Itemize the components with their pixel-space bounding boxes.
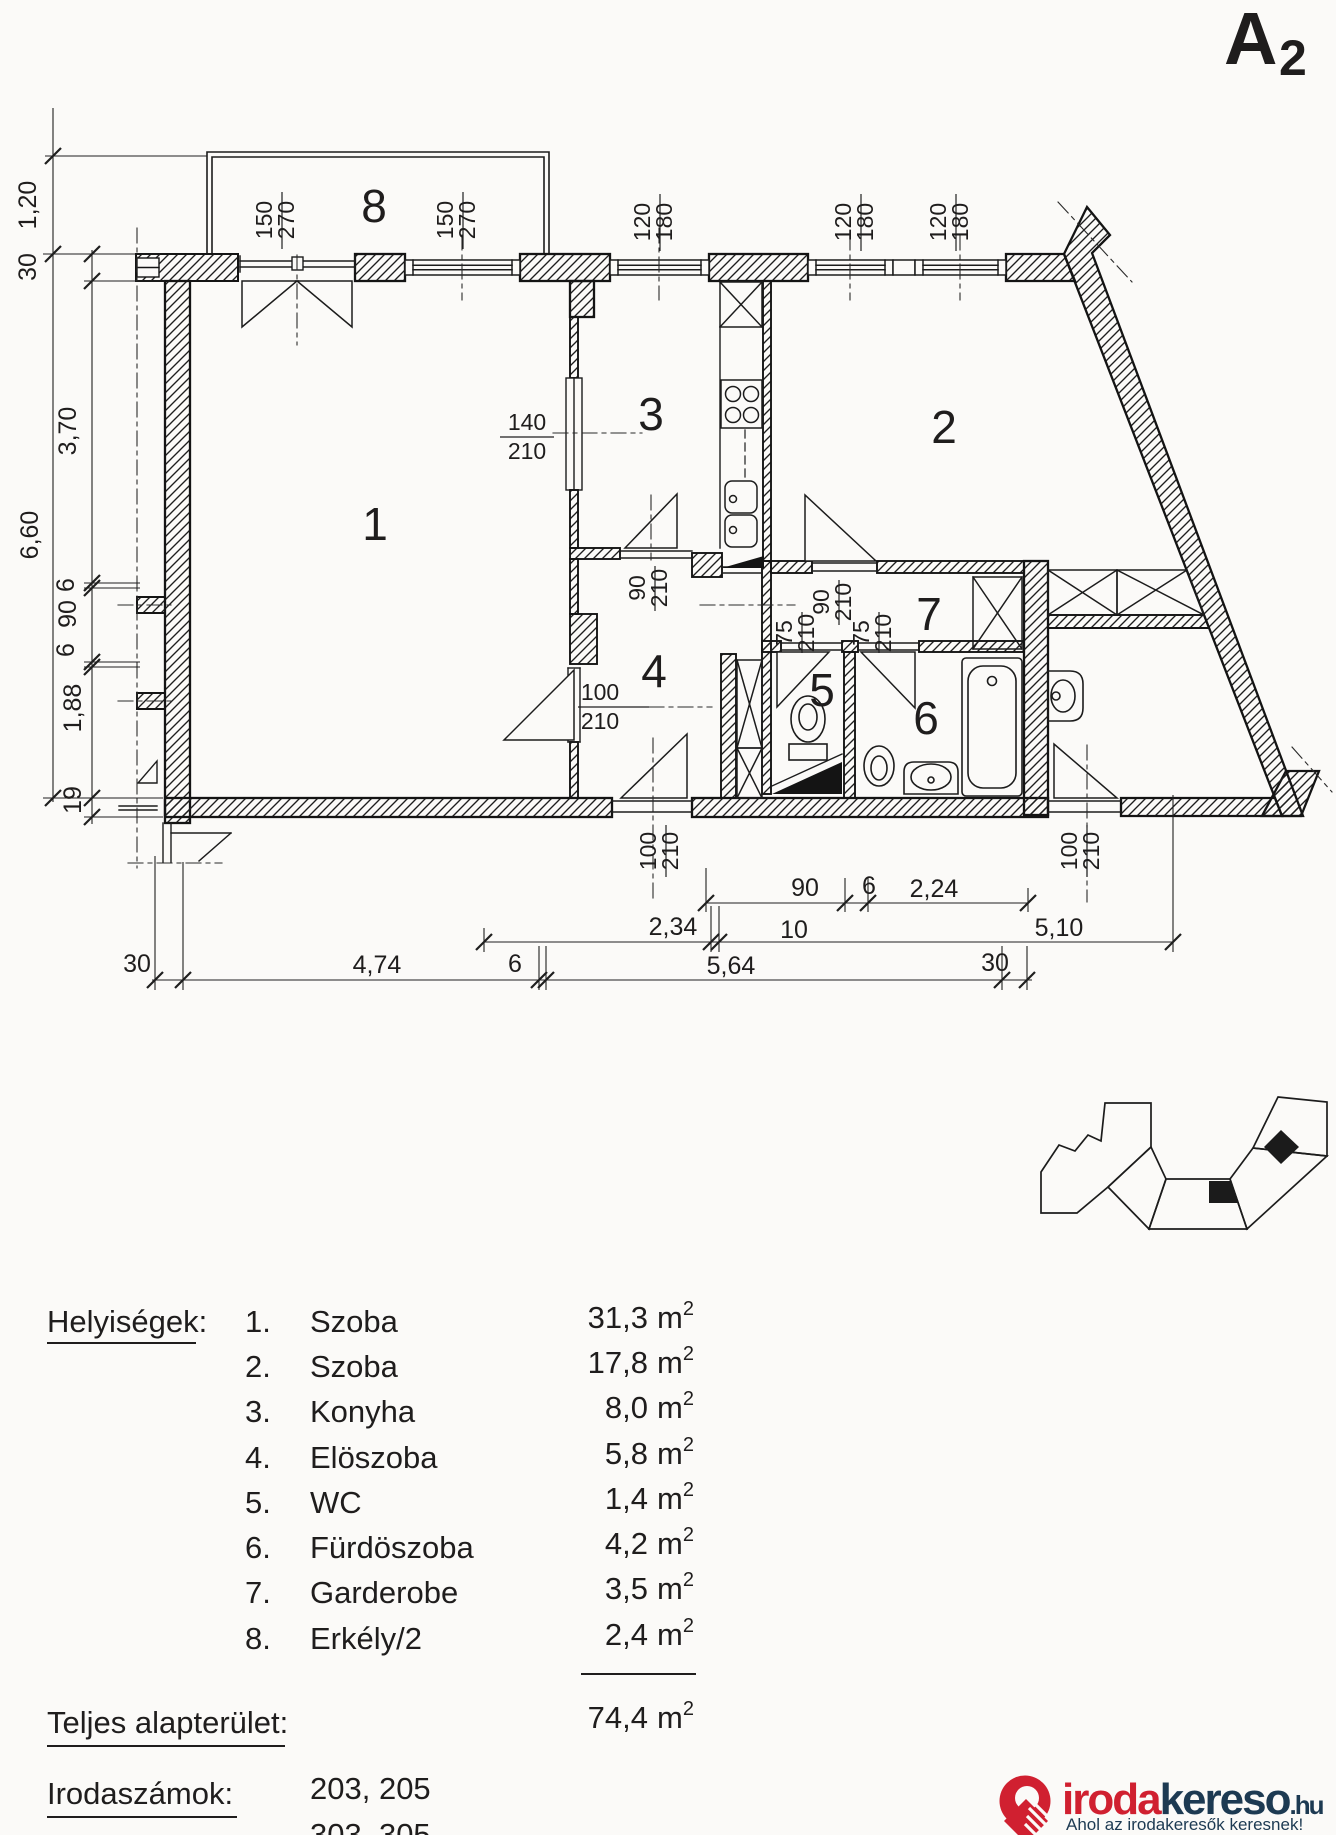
svg-text:8.: 8. (245, 1621, 271, 1656)
svg-text:1,88: 1,88 (59, 684, 87, 733)
svg-text:1.: 1. (245, 1304, 271, 1339)
svg-text:203, 205: 203, 205 (310, 1771, 431, 1806)
svg-text:3.: 3. (245, 1394, 271, 1429)
svg-text:A: A (1224, 0, 1277, 80)
svg-text:30: 30 (14, 253, 42, 281)
svg-text:Szoba: Szoba (310, 1304, 399, 1339)
svg-text:10: 10 (780, 916, 808, 944)
svg-text:2: 2 (931, 401, 957, 453)
svg-text:4,74: 4,74 (353, 951, 402, 979)
svg-text:5.: 5. (245, 1485, 271, 1520)
svg-text:2: 2 (1279, 30, 1307, 86)
svg-text:210: 210 (646, 569, 672, 607)
svg-text:6: 6 (913, 692, 939, 744)
svg-text:270: 270 (454, 201, 480, 239)
svg-text:2,34: 2,34 (649, 913, 698, 941)
svg-text:4.: 4. (245, 1440, 271, 1475)
svg-text:17,8: 17,8 (588, 1345, 648, 1380)
svg-text:6: 6 (862, 872, 876, 900)
svg-text:210: 210 (1078, 832, 1104, 870)
svg-text:19: 19 (59, 786, 87, 814)
svg-text:7: 7 (916, 588, 942, 640)
svg-text:8: 8 (361, 180, 387, 232)
svg-text:30: 30 (981, 949, 1009, 977)
svg-text:Szoba: Szoba (310, 1349, 399, 1384)
svg-text:100: 100 (581, 679, 619, 705)
svg-text:2.: 2. (245, 1349, 271, 1384)
svg-text:1: 1 (362, 498, 388, 550)
svg-text:4: 4 (641, 645, 667, 697)
svg-text:3,5: 3,5 (605, 1571, 648, 1606)
svg-text:6: 6 (52, 643, 80, 657)
svg-text:140: 140 (508, 409, 546, 435)
svg-text:180: 180 (651, 203, 677, 241)
svg-text:Fürdöszoba: Fürdöszoba (310, 1530, 474, 1565)
svg-text:6.: 6. (245, 1530, 271, 1565)
svg-text:1,4: 1,4 (605, 1481, 648, 1516)
svg-text:74,4: 74,4 (588, 1700, 648, 1735)
svg-text:5,8: 5,8 (605, 1436, 648, 1471)
svg-text:210: 210 (581, 708, 619, 734)
svg-text:4,2: 4,2 (605, 1526, 648, 1561)
svg-text:Helyiségek:: Helyiségek: (47, 1304, 207, 1339)
svg-text:Konyha: Konyha (310, 1394, 416, 1429)
svg-text:8,0: 8,0 (605, 1390, 648, 1425)
svg-text:210: 210 (870, 614, 896, 652)
svg-text:180: 180 (947, 203, 973, 241)
svg-text:6: 6 (508, 950, 522, 978)
svg-text:7.: 7. (245, 1575, 271, 1610)
svg-text:Erkély/2: Erkély/2 (310, 1621, 422, 1656)
svg-text:210: 210 (830, 583, 856, 621)
svg-text:Elöszoba: Elöszoba (310, 1440, 438, 1475)
svg-text:30: 30 (123, 950, 151, 978)
svg-text:180: 180 (852, 203, 878, 241)
svg-text:5,64: 5,64 (707, 952, 756, 980)
svg-text:WC: WC (310, 1485, 362, 1520)
svg-text:303, 305: 303, 305 (310, 1817, 431, 1835)
svg-text:2,4: 2,4 (605, 1617, 648, 1652)
svg-text:6,60: 6,60 (16, 511, 44, 560)
svg-text:3,70: 3,70 (54, 407, 82, 456)
svg-text:90: 90 (54, 600, 82, 628)
svg-text:90: 90 (791, 874, 819, 902)
svg-text:Teljes alapterület:: Teljes alapterület: (47, 1705, 288, 1740)
svg-text:6: 6 (52, 578, 80, 592)
svg-text:5: 5 (809, 664, 835, 716)
svg-text:210: 210 (793, 614, 819, 652)
svg-text:210: 210 (508, 438, 546, 464)
svg-text:2,24: 2,24 (910, 875, 959, 903)
svg-text:270: 270 (273, 201, 299, 239)
svg-text:31,3: 31,3 (588, 1300, 648, 1335)
svg-text:1,20: 1,20 (14, 181, 42, 230)
svg-text:Irodaszámok:: Irodaszámok: (47, 1776, 233, 1811)
svg-text:5,10: 5,10 (1035, 914, 1084, 942)
svg-text:210: 210 (657, 832, 683, 870)
svg-text:3: 3 (638, 388, 664, 440)
svg-text:Garderobe: Garderobe (310, 1575, 458, 1610)
svg-text:Ahol az irodakeresők keresnek!: Ahol az irodakeresők keresnek! (1066, 1815, 1303, 1834)
